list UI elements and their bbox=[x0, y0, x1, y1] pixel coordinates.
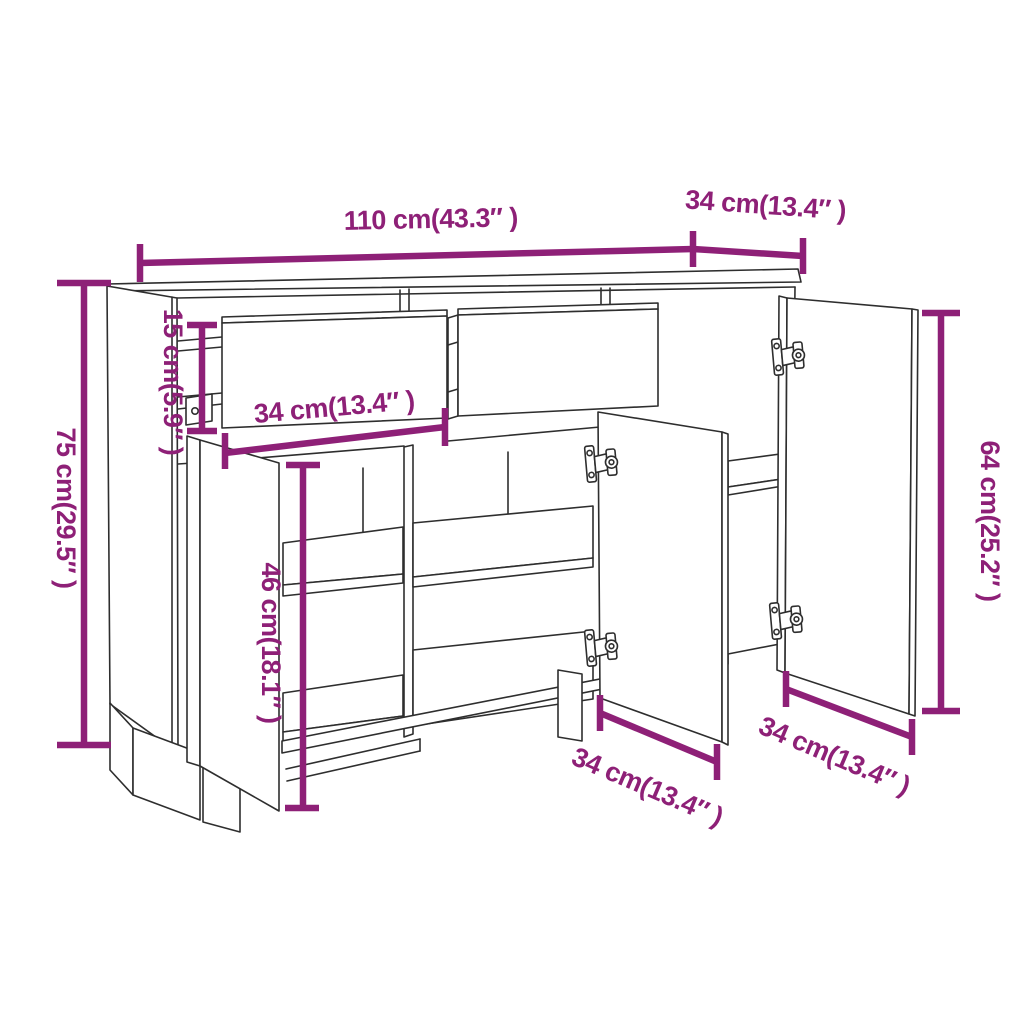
diagram-stage: 110 cm(43.3″ ) 34 cm(13.4″ ) 75 cm(29.5″… bbox=[0, 0, 1024, 1024]
middle-drawer-front bbox=[458, 309, 658, 416]
center-divider bbox=[404, 445, 413, 737]
label-right-door-width: 34 cm(13.4″ ) bbox=[755, 710, 915, 801]
middle-drawer bbox=[448, 303, 658, 419]
top-panel bbox=[107, 269, 801, 291]
dimension-door-height bbox=[922, 313, 960, 711]
label-overall-width: 110 cm(43.3″ ) bbox=[343, 202, 518, 236]
label-overall-depth: 34 cm(13.4″ ) bbox=[684, 184, 847, 225]
sideboard-dimension-diagram: 110 cm(43.3″ ) 34 cm(13.4″ ) 75 cm(29.5″… bbox=[0, 0, 1024, 1024]
label-door-height: 64 cm(25.2″ ) bbox=[975, 440, 1005, 601]
label-interior-height: 46 cm(18.1″ ) bbox=[256, 562, 286, 723]
dimension-interior-height bbox=[285, 465, 320, 808]
label-overall-height: 75 cm(29.5″ ) bbox=[51, 427, 81, 588]
label-drawer-height: 15 cm(5.9″ ) bbox=[158, 309, 188, 456]
